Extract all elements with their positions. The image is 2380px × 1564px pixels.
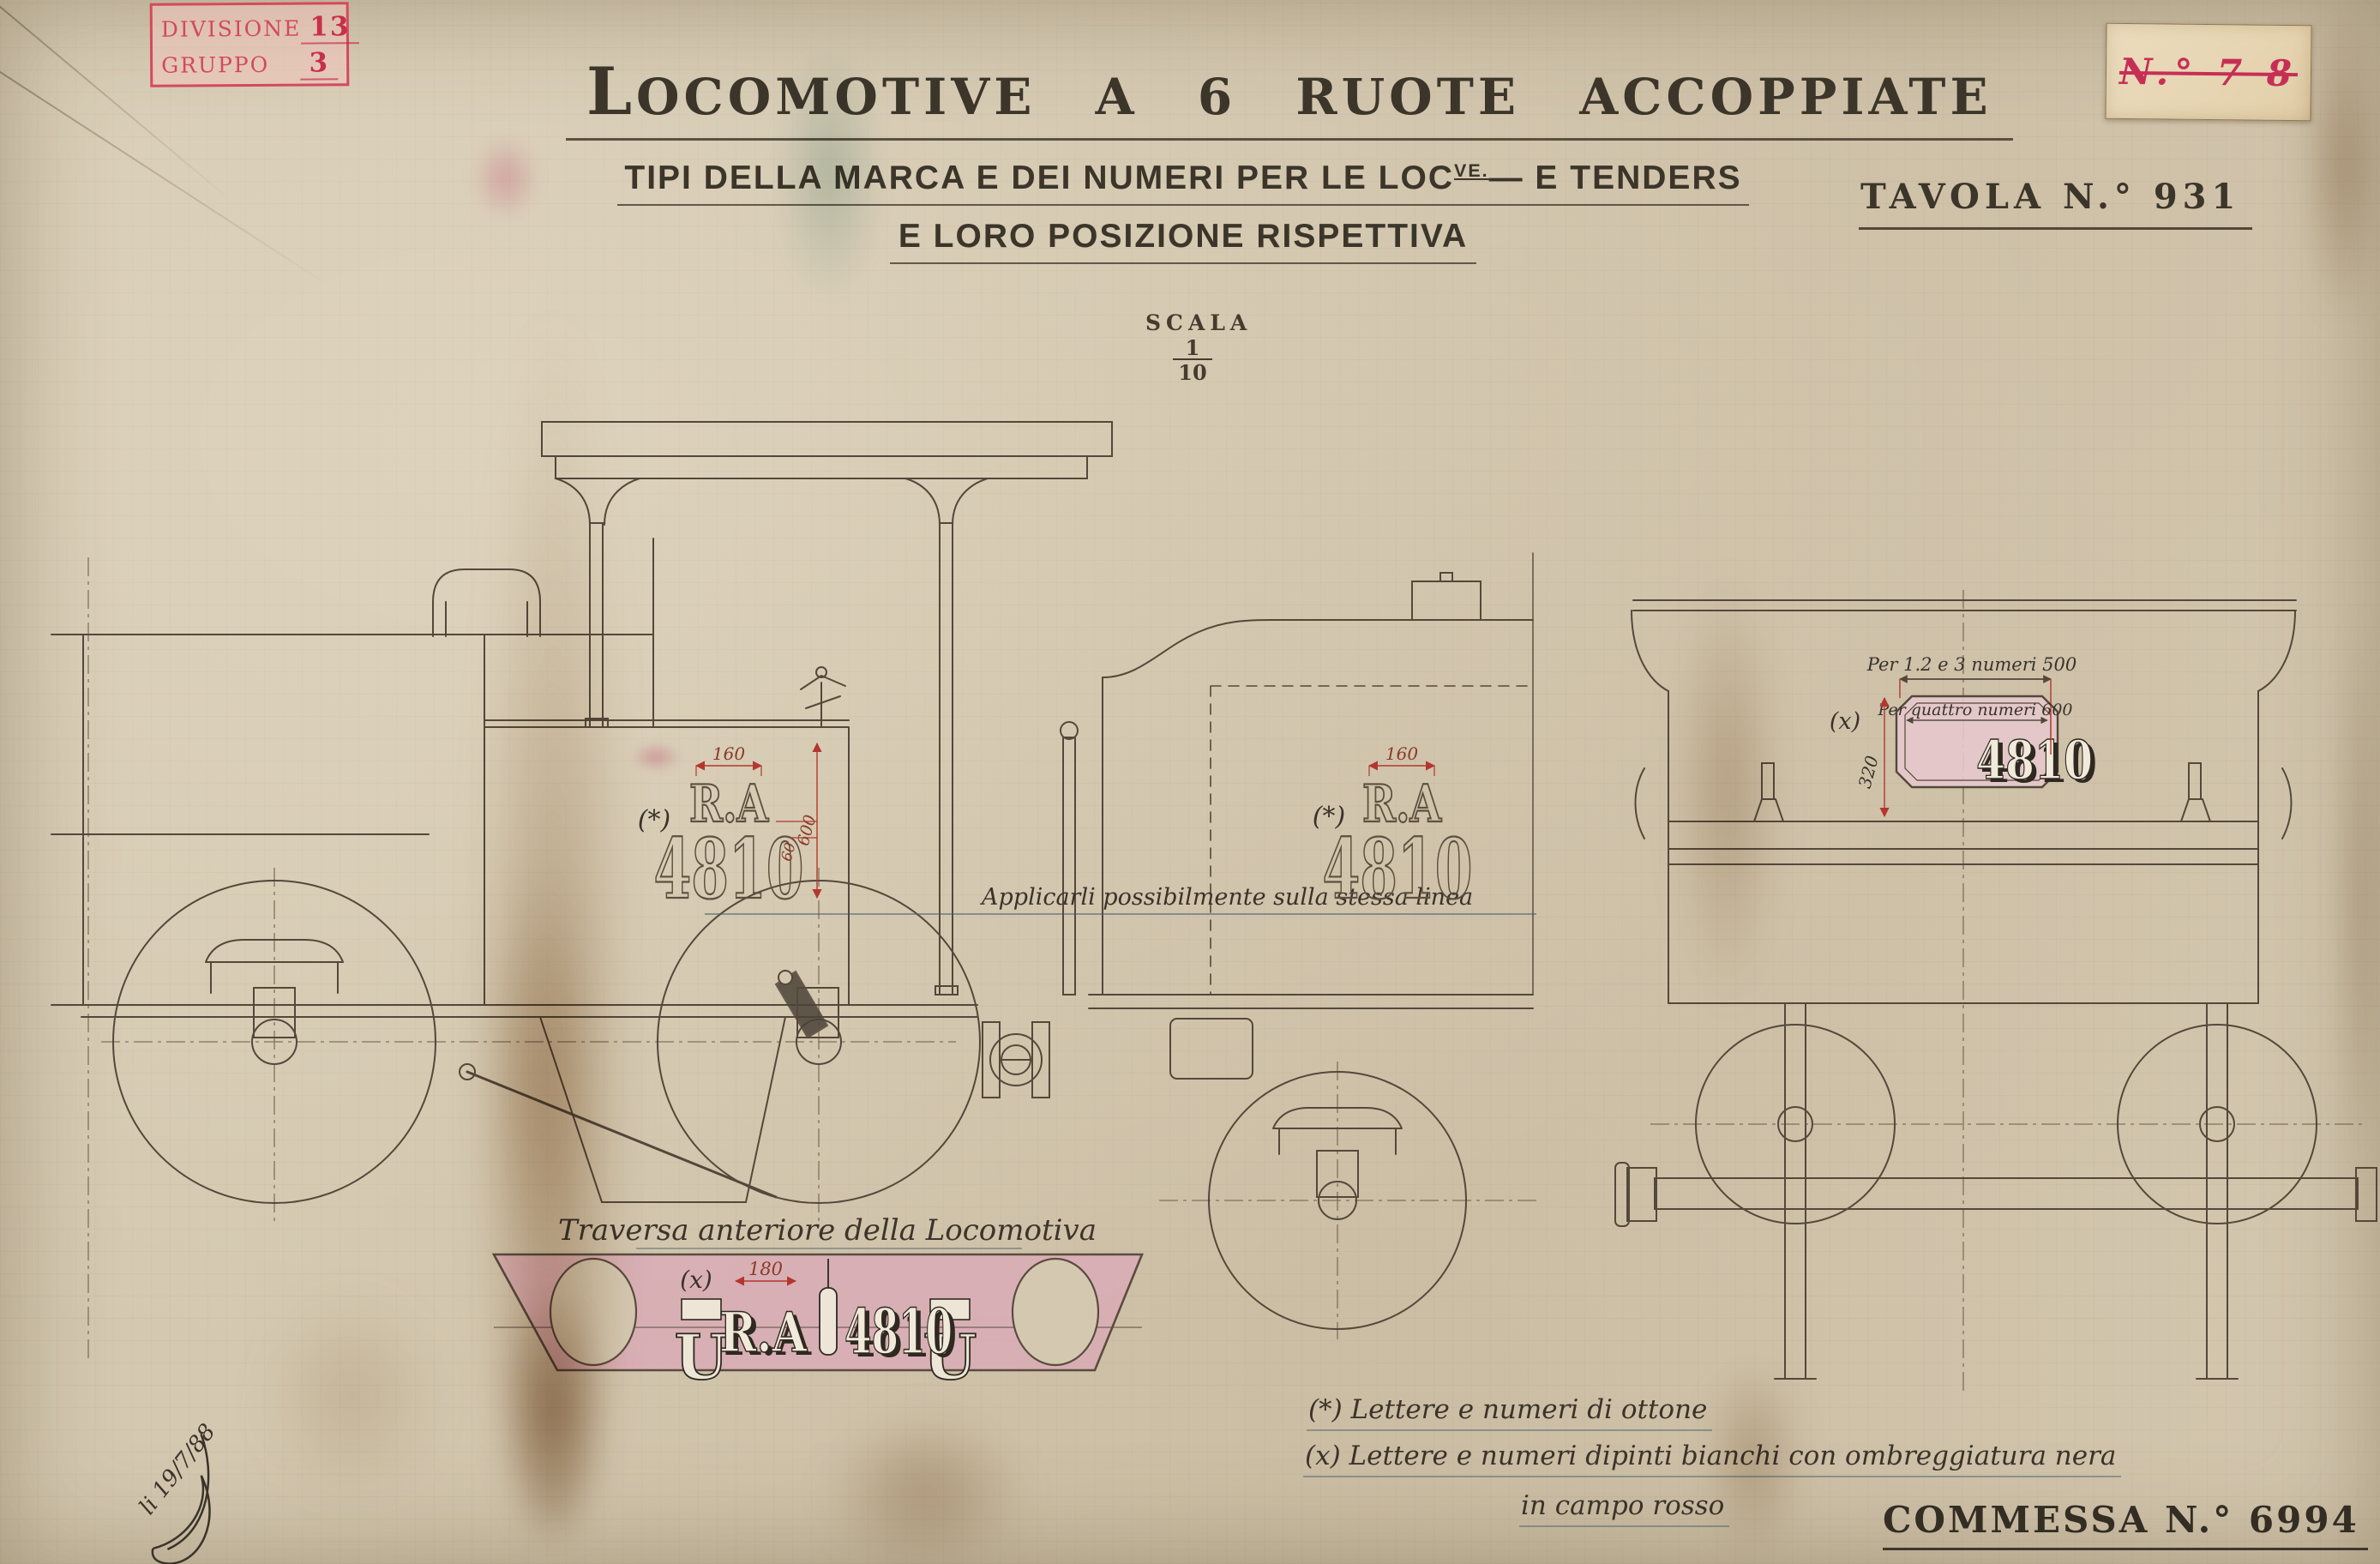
tender-side-view — [1061, 553, 1533, 1329]
tender-rear-top — [1633, 600, 2296, 611]
legend-line-2: (x) Lettere e numeri dipinti bianchi con… — [1303, 1441, 2121, 1471]
locomotive-side-view — [51, 422, 1112, 1203]
tender-dim-width: 160 — [1385, 743, 1418, 764]
footstep-panel — [540, 1017, 785, 1202]
legend-line-3: in campo rosso — [1519, 1490, 1729, 1521]
loco-cab-marking: (*) R.A 4810 160 600 60 — [638, 743, 820, 917]
division-stamp: DIVISIONE 13 GRUPPO 3 — [150, 2, 350, 87]
document-number-label: N.° 7 8 — [2105, 23, 2311, 122]
centerlines — [88, 557, 2362, 1396]
subtitle-superscript: VE. — [1454, 160, 1489, 181]
tender-marking-number: 4810 — [1323, 821, 1473, 917]
plate-number: 4810 — [1976, 729, 2093, 791]
left-wall — [1632, 611, 1668, 1003]
tender-side-marking: (*) R.A 4810 160 — [1313, 743, 1473, 917]
stamp-group-value: 3 — [300, 47, 338, 80]
beam-dim-width: 180 — [748, 1259, 783, 1279]
scale-note: SCALA 1 10 — [1145, 310, 1240, 383]
page-title: LOCOMOTIVE A 6 RUOTE ACCOPPIATE — [566, 53, 2013, 141]
drawing-sheet: 4810 4810 Per 1.2 e 3 numeri 500 Per qua… — [0, 0, 2380, 1564]
scale-numerator: 1 — [1186, 335, 1200, 360]
axle-guard-right — [2197, 1003, 2238, 1379]
document-number: N.° 7 8 — [2119, 50, 2299, 93]
beam-ref-mark: (x) — [680, 1266, 712, 1294]
beam-number: 4810 — [844, 1295, 953, 1368]
signature: li 19/7/88 — [116, 1419, 261, 1564]
plate-dim-inner-label: Per quattro numeri 600 — [1877, 701, 2072, 719]
axle-guard-left — [1775, 1003, 1816, 1379]
stamp-group-label: GRUPPO — [161, 52, 269, 78]
tender-bottom — [1089, 995, 1533, 1008]
stamp-division-label: DIVISIONE — [161, 16, 302, 42]
loco-marking-number: 4810 — [654, 821, 804, 917]
subtitle-line2: E LORO POSIZIONE RISPETTIVA — [566, 218, 1800, 264]
cab-roof-fascia — [556, 456, 1087, 478]
coupling — [983, 1022, 1049, 1098]
scale-label: SCALA — [1145, 310, 1240, 335]
buffer-bar — [1615, 1163, 2377, 1226]
plate-number-title: TAVOLA N.° 931 — [1859, 177, 2252, 230]
tender-hatch — [1412, 581, 1481, 620]
coupling-pin — [820, 1288, 837, 1355]
brake-rod — [467, 1072, 776, 1197]
subtitle-post: — E TENDERS — [1489, 159, 1742, 196]
handrail-post — [1063, 737, 1075, 995]
loco-dim-width: 160 — [712, 743, 745, 764]
tender-top-profile — [1103, 620, 1533, 677]
subtitle-pre: TIPI DELLA MARCA E DEI NUMERI PER LE LOC — [624, 159, 1454, 196]
plate-dim-top-label: Per 1.2 e 3 numeri 500 — [1866, 654, 2076, 675]
title-block: LOCOMOTIVE A 6 RUOTE ACCOPPIATE TIPI DEL… — [566, 53, 1800, 264]
plate-ref-mark: (x) — [1830, 708, 1860, 735]
plate-dim-height-label: 320 — [1854, 753, 1883, 790]
legend-line-1: (*) Lettere e numeri di ottone — [1307, 1394, 1712, 1425]
order-number: COMMESSA N.° 6994 — [1883, 1499, 2368, 1550]
spring-hanger-bracket — [1170, 1019, 1253, 1079]
right-wall — [2258, 611, 2295, 1003]
beam-letters: R.A — [719, 1301, 808, 1365]
canopy-rear-post — [940, 523, 953, 995]
subtitle-line1: TIPI DELLA MARCA E DEI NUMERI PER LE LOC… — [566, 159, 1800, 206]
cab-roof — [542, 422, 1112, 456]
loco-dim-height: 600 — [794, 813, 820, 848]
buffer-hole-left — [550, 1259, 636, 1365]
shackle-head-left — [682, 1299, 721, 1320]
buffer-beam-caption: Traversa anteriore della Locomotiva — [558, 1213, 1097, 1248]
scale-denominator: 10 — [1173, 358, 1211, 383]
stamp-division-value: 13 — [301, 11, 358, 44]
chimney — [433, 569, 540, 636]
canopy-front-post — [590, 523, 603, 727]
buffer-beam-view: Traversa anteriore della Locomotiva U U … — [494, 1213, 1142, 1393]
buffer-hole-right — [1013, 1259, 1098, 1365]
